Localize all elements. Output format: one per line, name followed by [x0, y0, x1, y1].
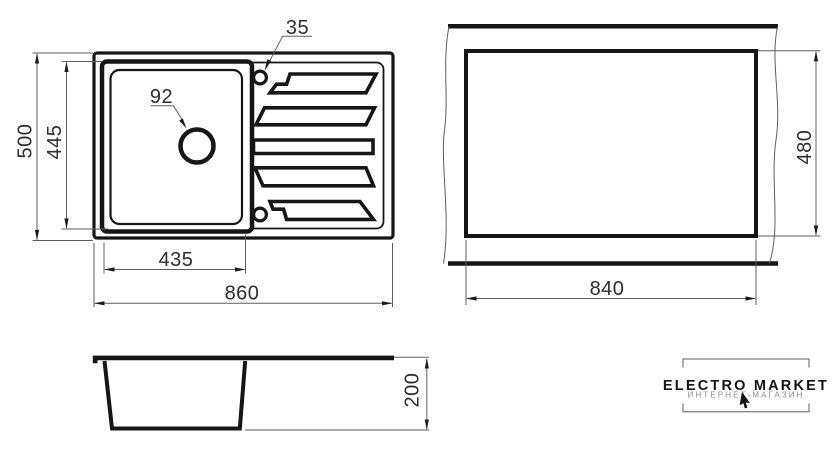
dim-bowl-width: 435	[104, 235, 246, 274]
dim-cutout-height: 480	[758, 51, 821, 236]
sink-top-view: 35 92 500 445	[15, 17, 394, 307]
dim-overall-width: 860	[94, 243, 393, 307]
dim-cutout-height-label: 480	[794, 130, 816, 165]
side-bowl-profile	[105, 361, 246, 429]
dim-cutout-width-label: 840	[590, 278, 625, 300]
drainboard-groove-4	[255, 168, 374, 186]
dim-tap-hole-label: 35	[286, 17, 309, 39]
bowl-outer-edge	[102, 62, 252, 232]
dim-overall-depth-label: 500	[15, 124, 37, 159]
sink-side-view: 200	[93, 356, 429, 430]
dim-bowl-height: 200	[402, 358, 429, 430]
cutout-rectangle	[466, 51, 756, 236]
dim-bowl-height-label: 200	[402, 373, 424, 408]
break-line-right	[770, 26, 778, 263]
dim-drain-label: 92	[150, 86, 173, 108]
countertop-cutout-view: 480 840	[443, 26, 820, 305]
dim-bowl-depth-label: 445	[44, 125, 66, 160]
technical-drawing-page: 35 92 500 445	[0, 0, 840, 453]
dim-cutout-width: 840	[466, 240, 756, 305]
drainboard-groove-3	[254, 140, 374, 154]
dim-overall-width-label: 860	[225, 283, 260, 305]
drainboard-groove-5	[270, 202, 374, 220]
sink-drawing-svg: 35 92 500 445	[0, 0, 840, 453]
logo: ELECTRO MARKET ИНТЕРНЕТ-МАГАЗИН	[663, 359, 829, 412]
break-line-left	[443, 26, 449, 263]
drainboard-groove-2	[256, 108, 375, 125]
dim-bowl-width-label: 435	[159, 249, 194, 271]
logo-frame-top	[683, 359, 809, 368]
